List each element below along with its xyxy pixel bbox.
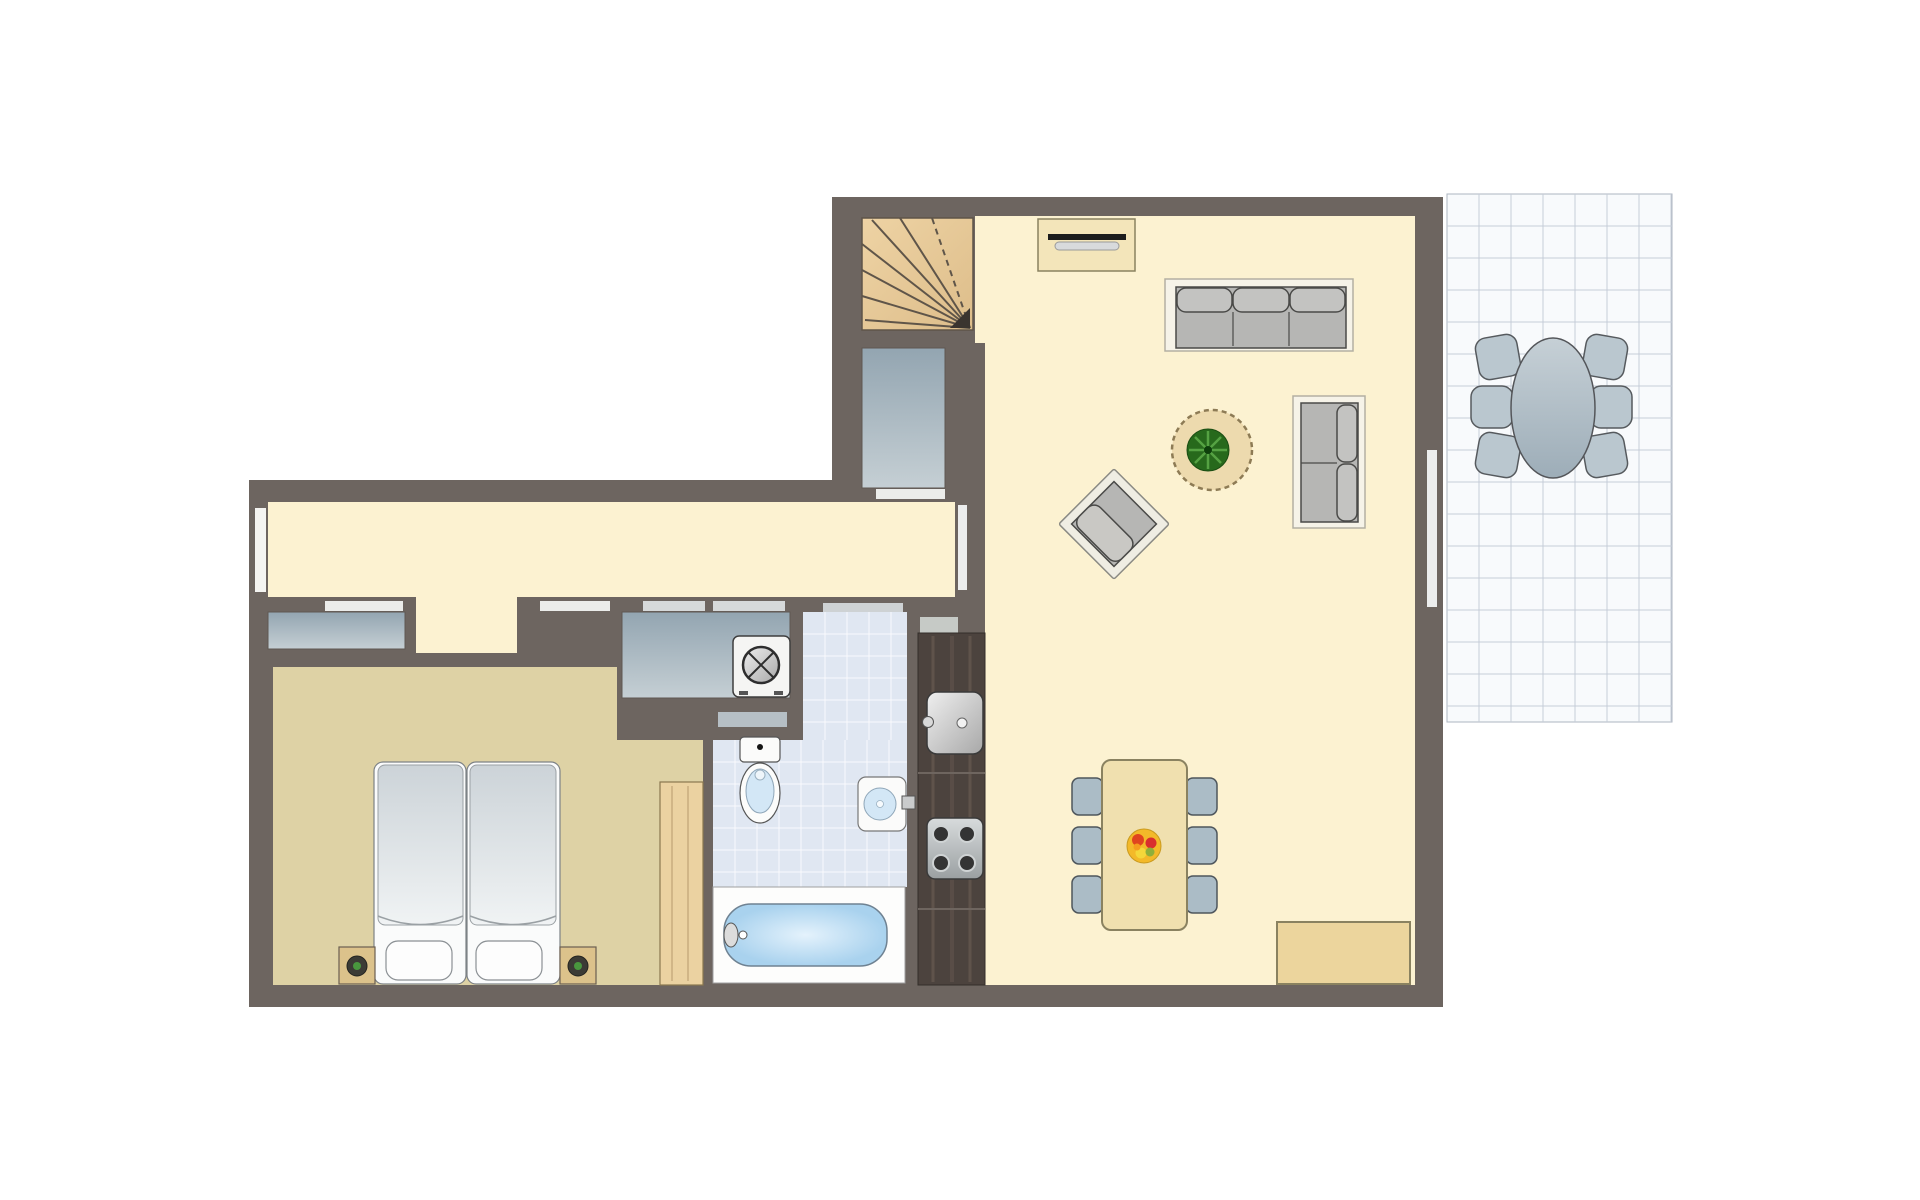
terrace-table: [1511, 338, 1595, 478]
corridor-living-door: [958, 505, 967, 590]
terrace-chair-5: [1590, 386, 1632, 428]
bedroom-closet-door: [325, 601, 403, 611]
fruit-2: [1146, 838, 1157, 849]
dining-chair-1: [1072, 778, 1103, 815]
bathtub: [724, 904, 887, 966]
bedroom-door: [540, 601, 610, 611]
fruit-5: [1134, 844, 1141, 851]
corridor-floor: [268, 502, 955, 597]
bathtub-faucet-knob: [739, 931, 747, 939]
under-stairs-closet: [862, 348, 945, 488]
bathroom-entry-floor: [803, 612, 907, 740]
sideboard-handle: [1048, 234, 1126, 240]
pillow-left: [386, 941, 452, 980]
burner-3: [933, 855, 949, 871]
sideboard-handle-dish: [1055, 242, 1119, 250]
window-left-wall: [255, 508, 266, 592]
utility-closet-door-left: [643, 601, 705, 611]
wash-basin-drain: [877, 801, 884, 808]
terrace-chair-1: [1474, 333, 1523, 382]
washing-machine-foot-1: [739, 691, 748, 695]
duvet-right: [470, 765, 556, 925]
wash-basin-tap: [902, 796, 915, 809]
bedroom-closet: [268, 612, 405, 649]
pillow-right: [476, 941, 542, 980]
toilet-button: [757, 744, 763, 750]
under-stairs-closet-door: [876, 489, 945, 499]
sofa-2seat-cushion-1: [1337, 405, 1357, 462]
sofa-3seat-cushion-1: [1177, 288, 1232, 312]
sofa-2seat-cushion-2: [1337, 464, 1357, 521]
fruit-bowl: [1127, 829, 1161, 863]
bedroom-wardrobe: [660, 782, 703, 985]
dining-chair-5: [1186, 827, 1217, 864]
kitchen-end-panel: [920, 617, 958, 633]
bathroom-wall-inset: [718, 712, 787, 727]
utility-closet-door-right: [713, 601, 785, 611]
corridor-niche-floor: [416, 597, 517, 653]
dining-chair-4: [1186, 778, 1217, 815]
sofa-3seat-cushion-3: [1290, 288, 1345, 312]
toilet-bowl-drain: [755, 770, 765, 780]
doormat: [1277, 922, 1410, 984]
washing-machine-foot-2: [774, 691, 783, 695]
dining-chair-2: [1072, 827, 1103, 864]
dining-chair-3: [1072, 876, 1103, 913]
duvet-left: [378, 765, 463, 925]
bathtub-faucet-body: [724, 923, 738, 947]
bedside-lamp-left-shade: [353, 962, 361, 970]
bedside-lamp-right-shade: [574, 962, 582, 970]
terrace-chair-2: [1471, 386, 1513, 428]
kitchen-sink-drain: [957, 718, 967, 728]
burner-4: [959, 855, 975, 871]
plant-center: [1204, 446, 1212, 454]
bathroom-door: [823, 603, 903, 612]
kitchen-sink-faucet: [923, 717, 934, 728]
dining-chair-6: [1186, 876, 1217, 913]
floor-plan: [0, 0, 1920, 1200]
sofa-3seat-cushion-2: [1233, 288, 1289, 312]
fruit-4: [1146, 848, 1155, 857]
floor-plan-svg: [0, 0, 1920, 1200]
burner-2: [959, 826, 975, 842]
terrace-sliding-door: [1427, 450, 1437, 607]
burner-1: [933, 826, 949, 842]
kitchen-sink: [927, 692, 983, 754]
